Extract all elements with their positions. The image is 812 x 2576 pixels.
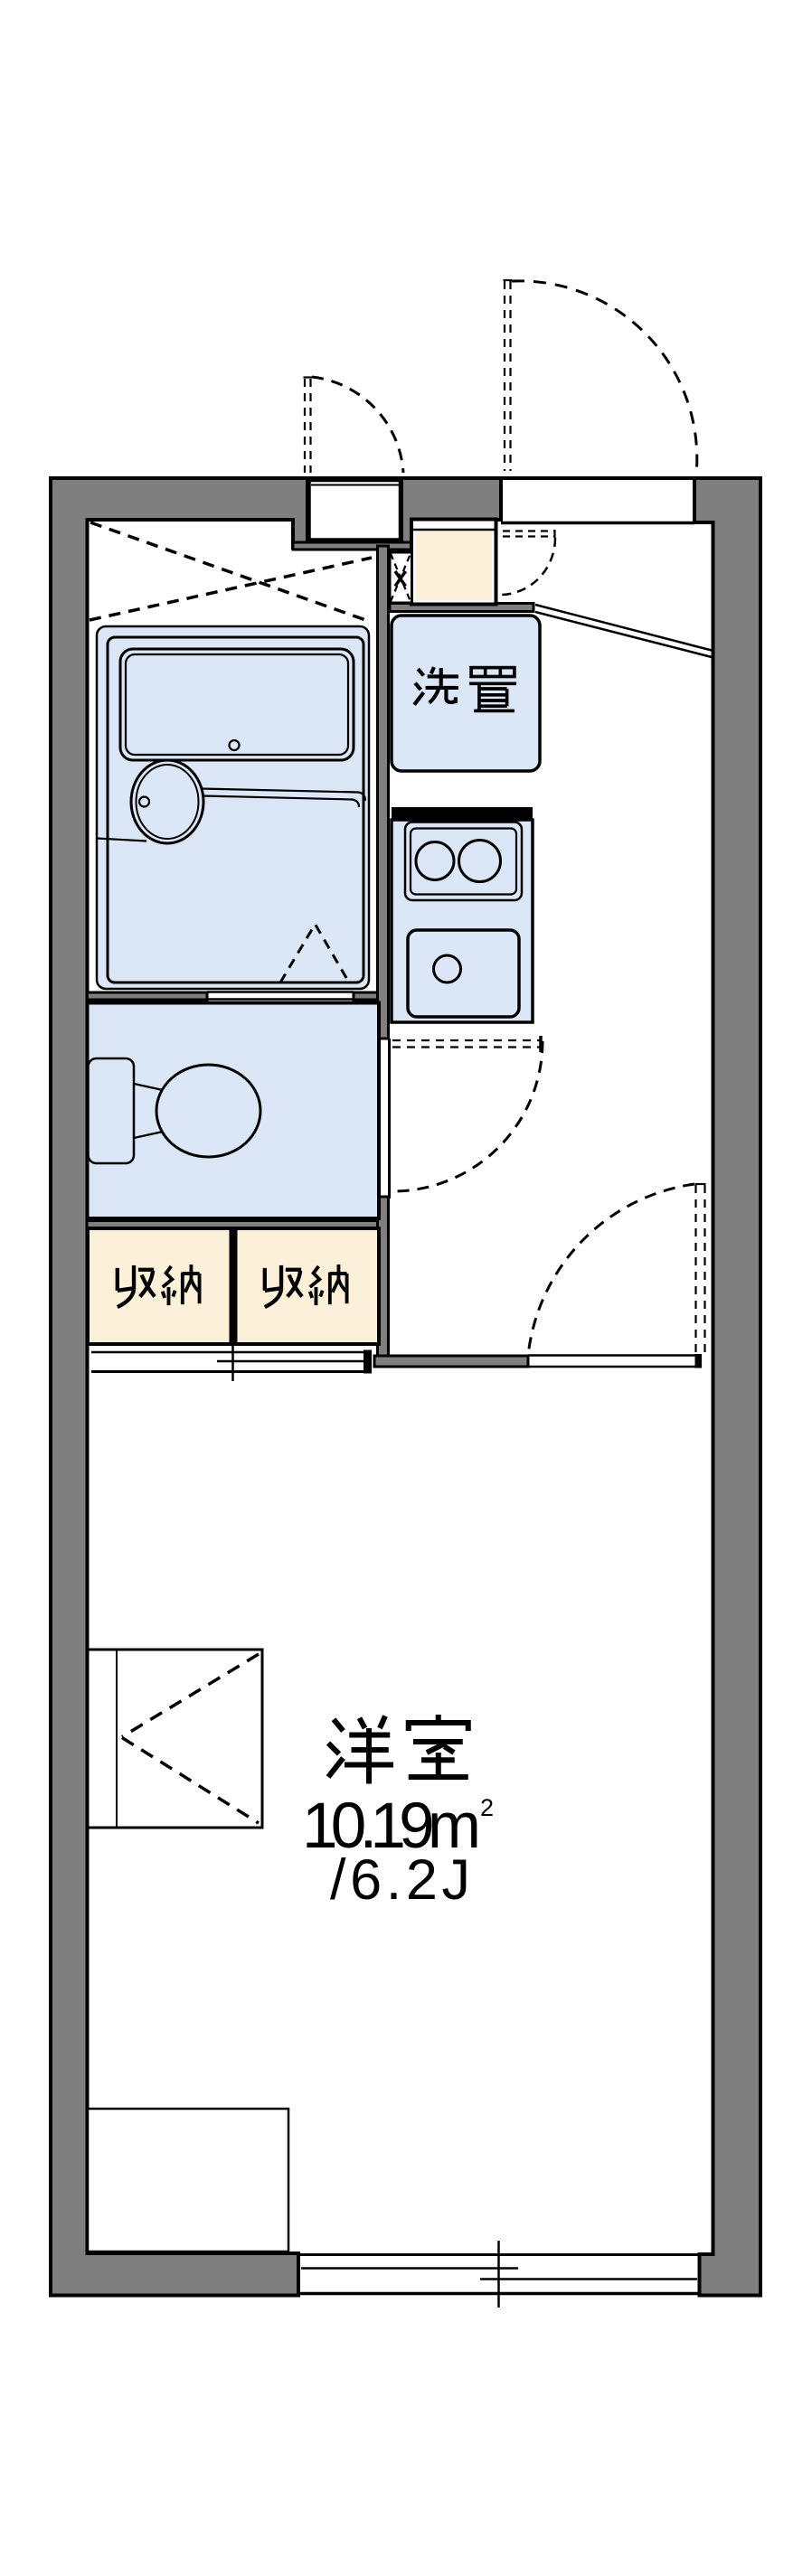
svg-text:2: 2 [480, 1794, 494, 1821]
svg-text:/6.2J: /6.2J [330, 1848, 470, 1912]
